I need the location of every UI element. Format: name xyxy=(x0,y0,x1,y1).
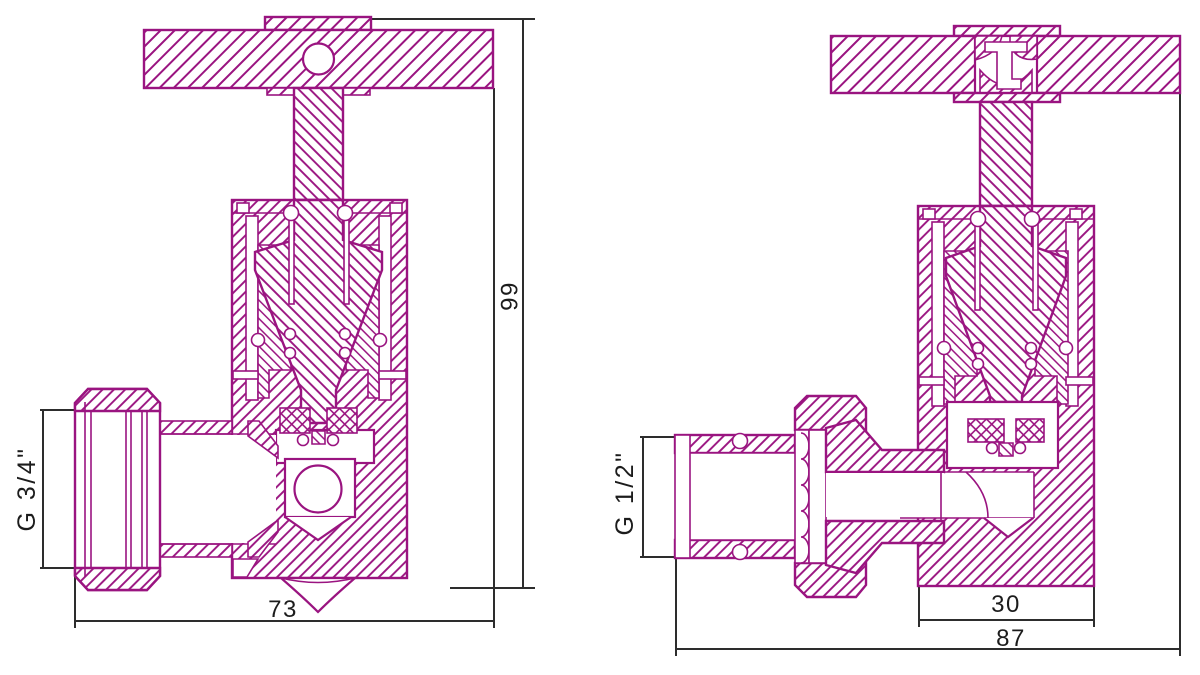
svg-text:87: 87 xyxy=(996,625,1026,652)
svg-text:G 1/2": G 1/2" xyxy=(611,450,639,535)
svg-text:30: 30 xyxy=(991,591,1021,618)
svg-text:G 3/4": G 3/4" xyxy=(13,446,41,531)
svg-text:99: 99 xyxy=(496,281,523,311)
svg-text:73: 73 xyxy=(268,596,298,623)
